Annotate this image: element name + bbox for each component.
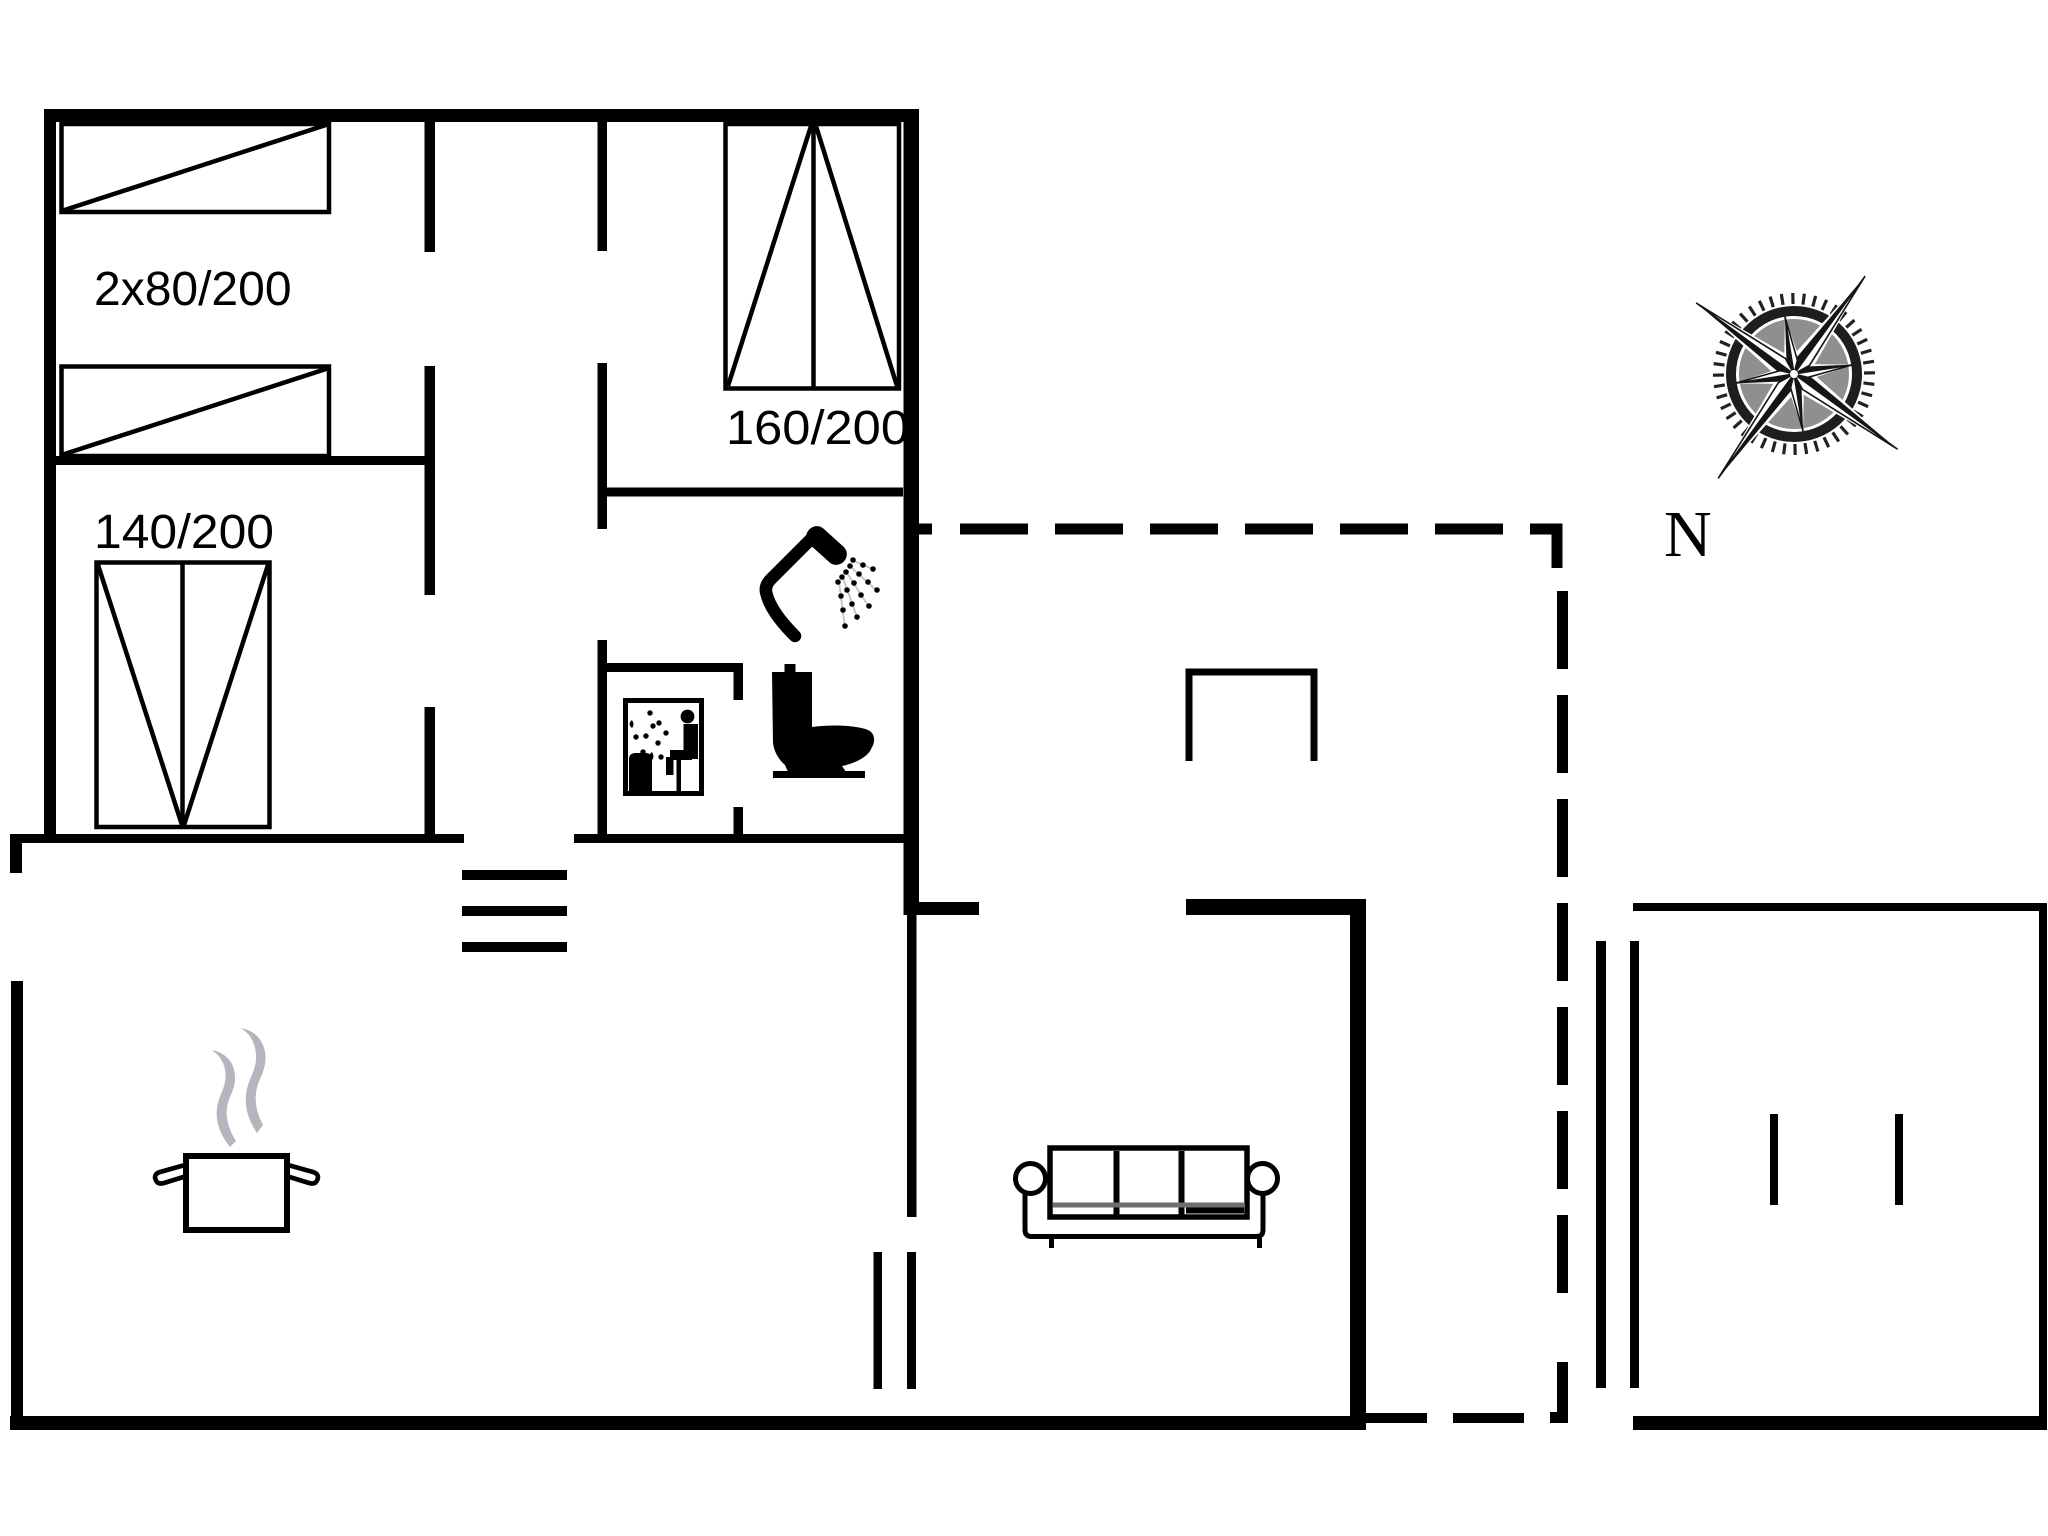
svg-text:140/200: 140/200 xyxy=(94,506,274,559)
svg-text:2x80/200: 2x80/200 xyxy=(94,263,292,316)
svg-text:160/200: 160/200 xyxy=(726,402,909,455)
svg-text:N: N xyxy=(1664,498,1712,571)
